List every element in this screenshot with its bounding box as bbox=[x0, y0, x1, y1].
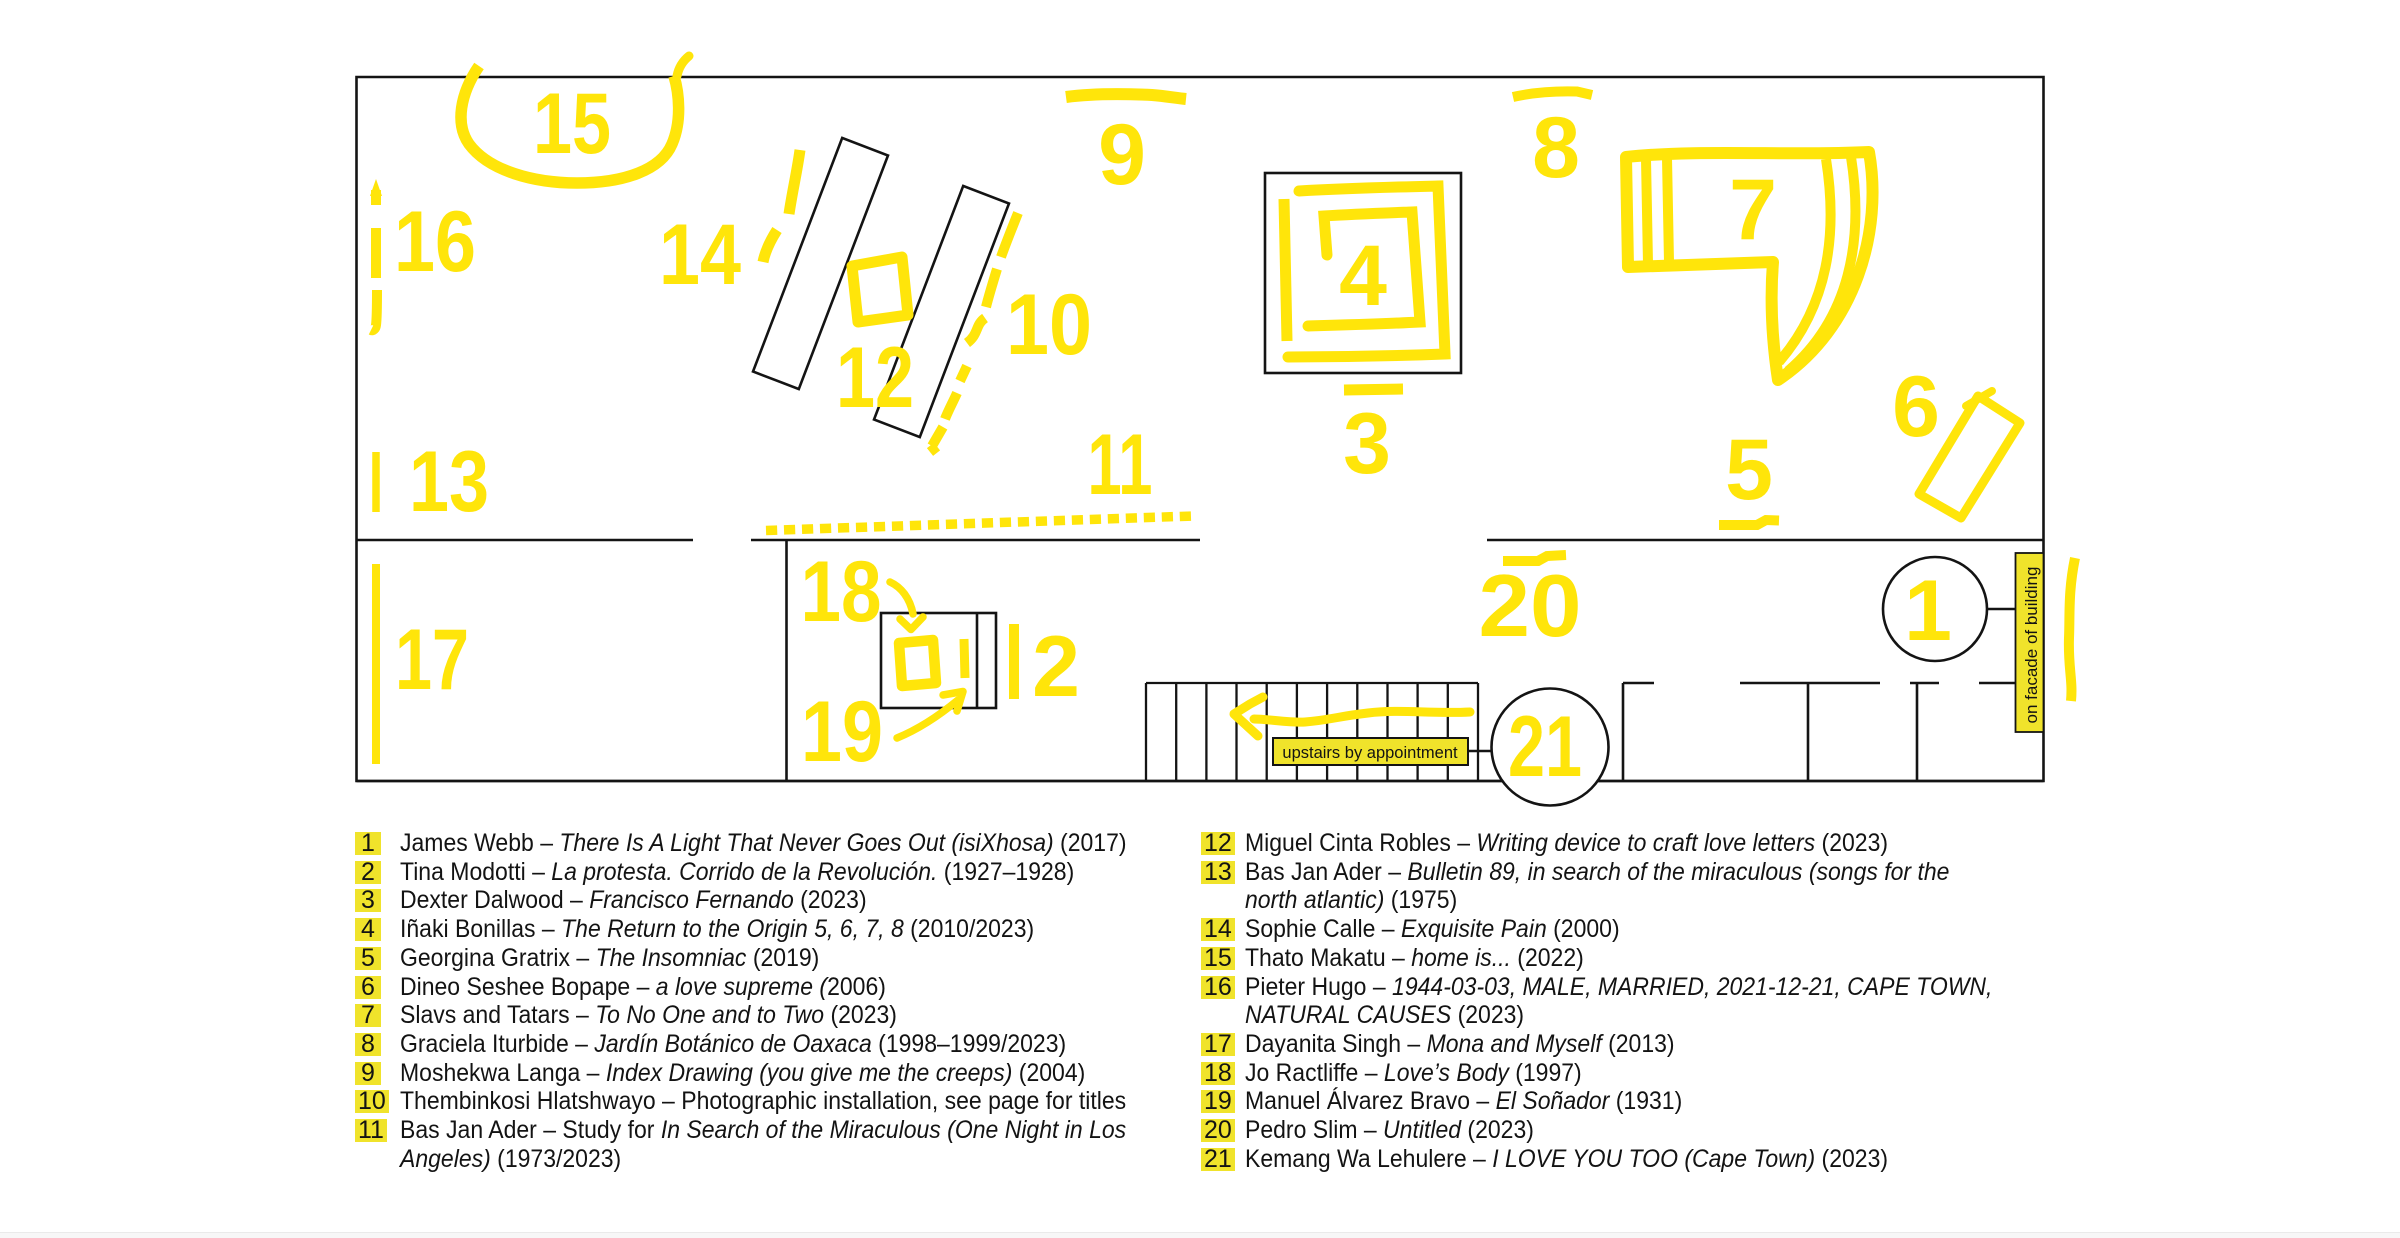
svg-text:14: 14 bbox=[659, 207, 741, 303]
svg-text:1: 1 bbox=[1904, 563, 1952, 659]
svg-text:4: 4 bbox=[1339, 228, 1387, 324]
svg-text:11: 11 bbox=[1088, 417, 1153, 513]
svg-text:2: 2 bbox=[1032, 619, 1080, 715]
svg-text:16: 16 bbox=[394, 194, 476, 290]
svg-text:21: 21 bbox=[1508, 699, 1582, 795]
svg-text:upstairs by appointment: upstairs by appointment bbox=[1282, 744, 1458, 762]
svg-text:12: 12 bbox=[836, 330, 914, 426]
svg-text:18: 18 bbox=[801, 544, 882, 640]
svg-text:10: 10 bbox=[1006, 277, 1092, 373]
svg-text:6: 6 bbox=[1892, 359, 1940, 455]
svg-text:19: 19 bbox=[801, 684, 883, 780]
svg-text:5: 5 bbox=[1725, 422, 1773, 518]
svg-text:20: 20 bbox=[1479, 556, 1582, 655]
svg-text:15: 15 bbox=[533, 76, 611, 172]
svg-text:7: 7 bbox=[1729, 162, 1777, 258]
svg-text:9: 9 bbox=[1098, 107, 1146, 203]
svg-text:3: 3 bbox=[1343, 396, 1391, 492]
svg-text:8: 8 bbox=[1532, 100, 1580, 196]
svg-text:on facade of building: on facade of building bbox=[2022, 567, 2041, 724]
svg-text:17: 17 bbox=[395, 612, 469, 708]
svg-text:13: 13 bbox=[409, 434, 489, 530]
